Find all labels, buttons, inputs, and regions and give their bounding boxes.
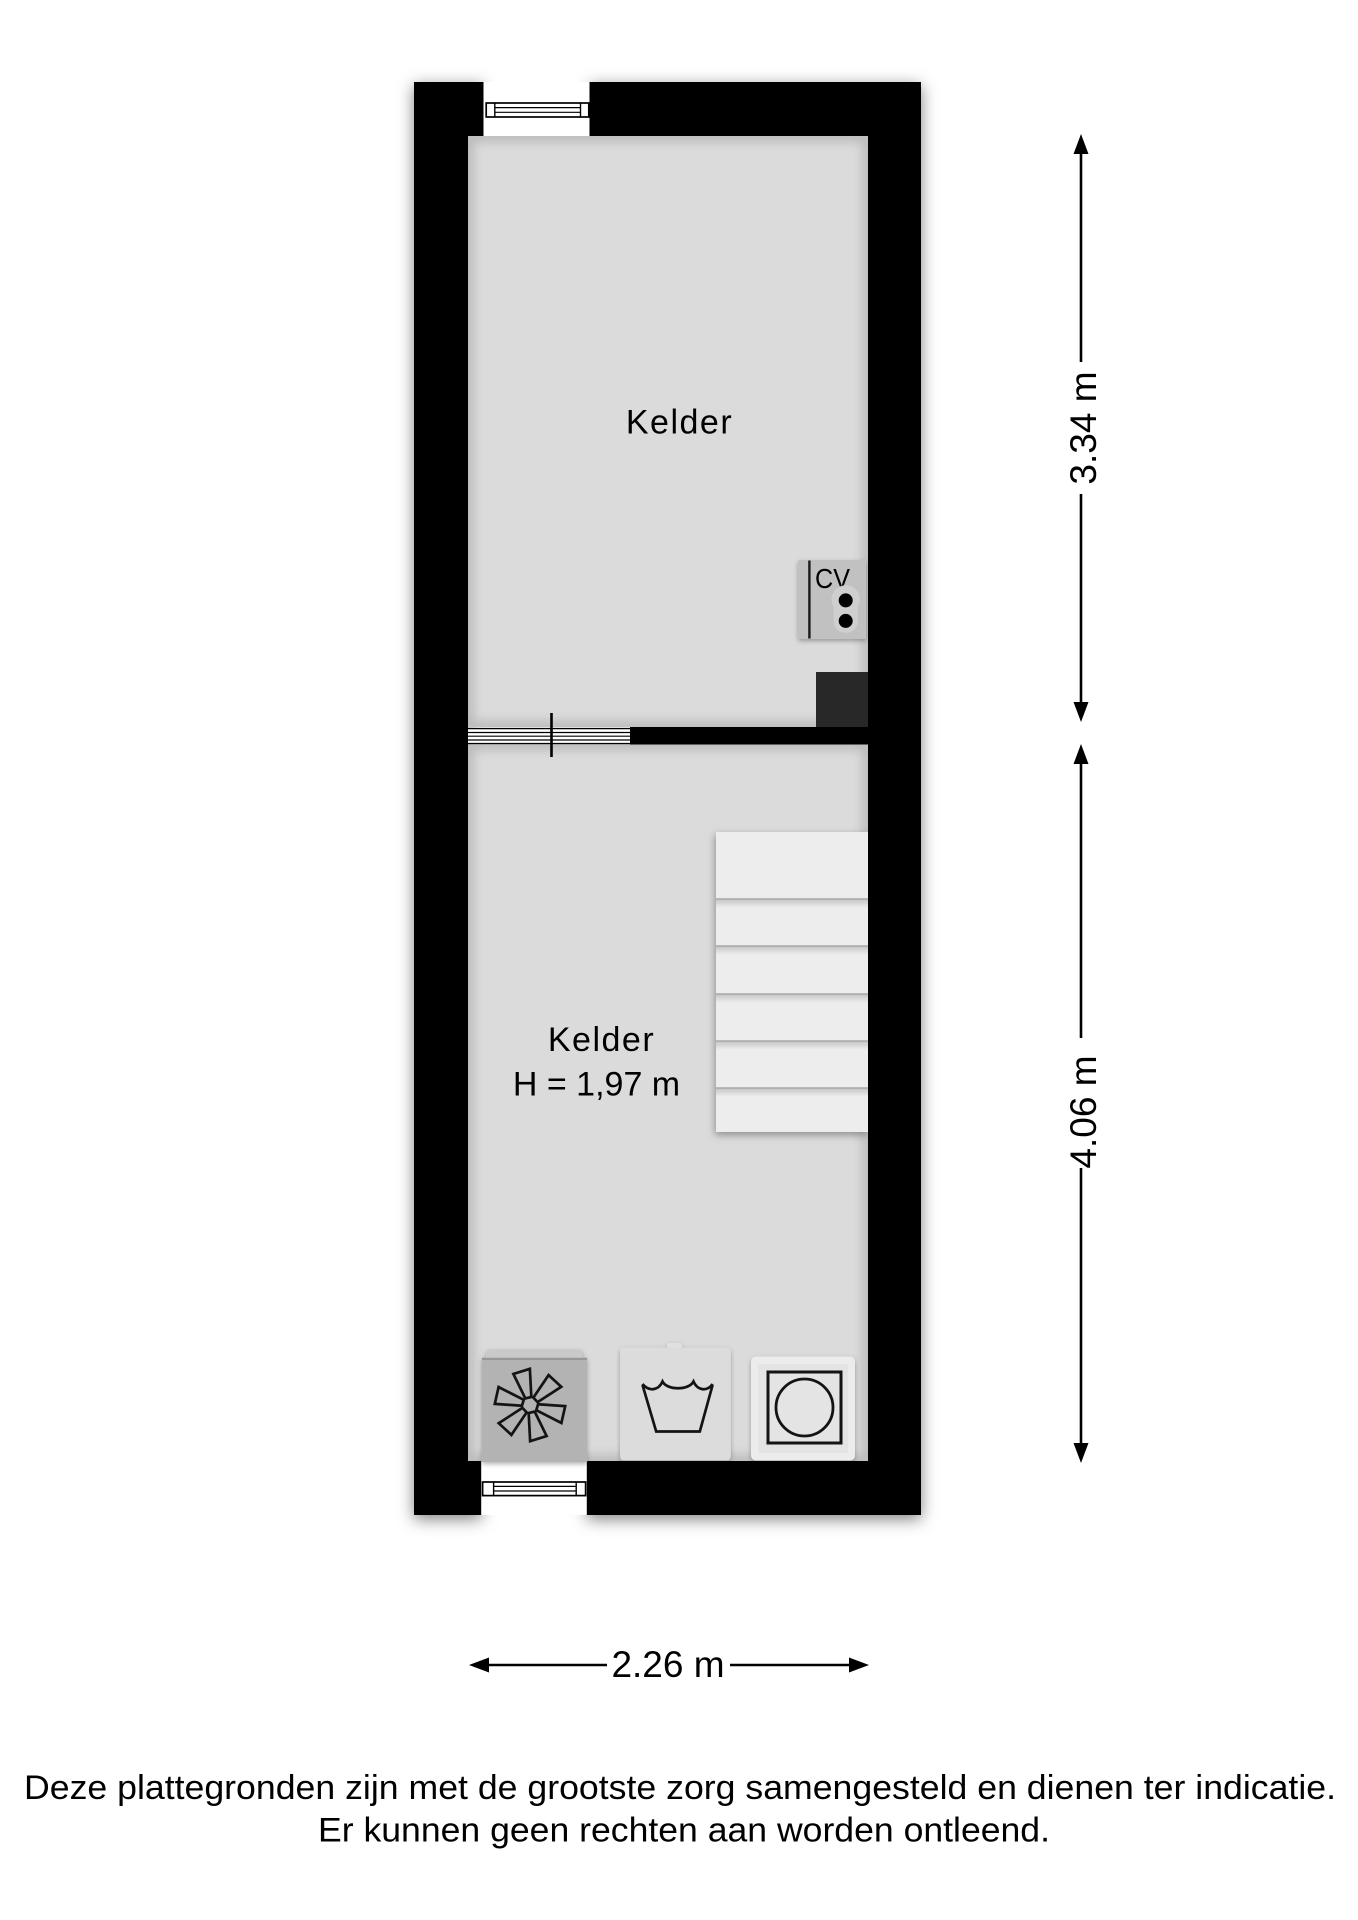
- svg-text:Deze plattegronden zijn met de: Deze plattegronden zijn met de grootste …: [24, 1769, 1336, 1807]
- svg-text:Kelder: Kelder: [548, 1021, 655, 1059]
- svg-text:H = 1,97 m: H = 1,97 m: [513, 1066, 680, 1104]
- svg-text:3.34 m: 3.34 m: [1063, 371, 1104, 484]
- svg-text:Kelder: Kelder: [626, 404, 733, 442]
- svg-text:Er kunnen geen rechten aan wor: Er kunnen geen rechten aan worden ontlee…: [318, 1812, 1050, 1850]
- svg-text:2.26 m: 2.26 m: [611, 1644, 724, 1685]
- svg-text:4.06 m: 4.06 m: [1063, 1055, 1104, 1168]
